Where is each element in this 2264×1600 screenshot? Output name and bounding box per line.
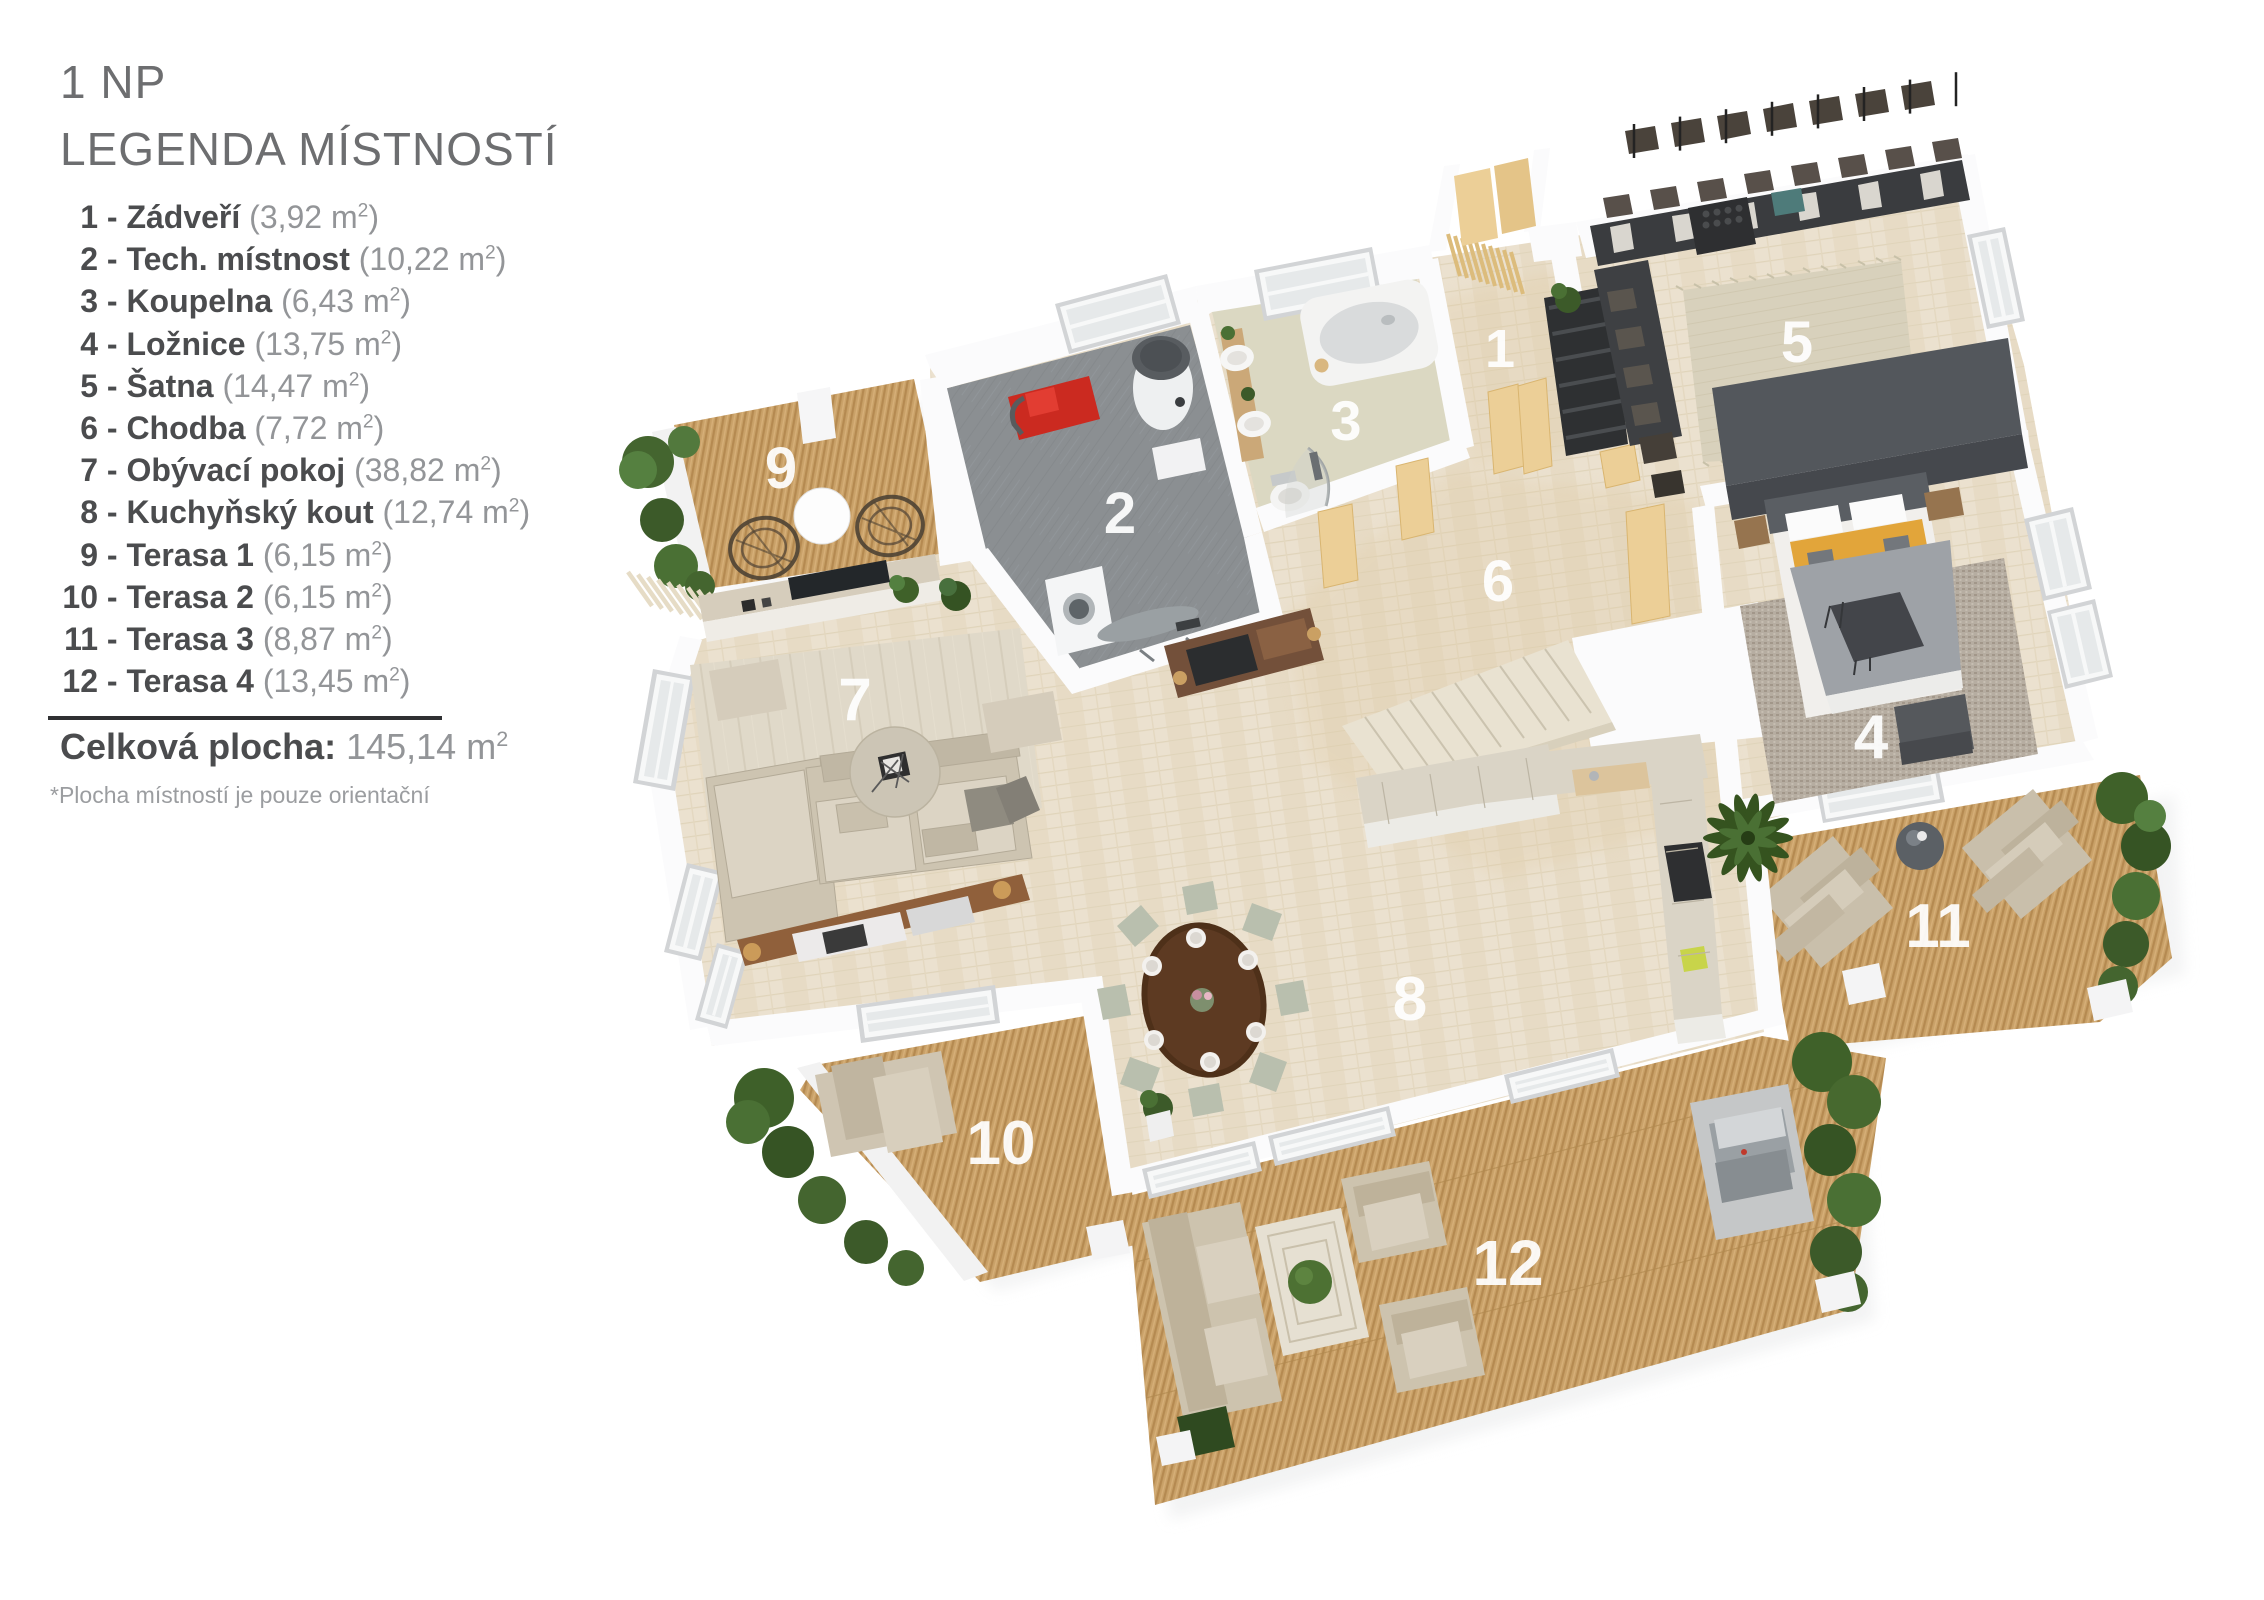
svg-text:9: 9	[765, 436, 797, 501]
svg-text:6: 6	[1482, 549, 1514, 614]
svg-text:2: 2	[1104, 481, 1136, 546]
svg-text:1: 1	[1485, 319, 1515, 379]
svg-text:10: 10	[967, 1109, 1036, 1178]
svg-text:11: 11	[1905, 892, 1971, 961]
svg-text:7: 7	[838, 666, 871, 733]
svg-text:4: 4	[1854, 703, 1889, 772]
svg-text:3: 3	[1330, 389, 1361, 452]
svg-text:12: 12	[1472, 1227, 1543, 1299]
svg-text:8: 8	[1393, 965, 1427, 1034]
svg-text:5: 5	[1781, 310, 1813, 375]
